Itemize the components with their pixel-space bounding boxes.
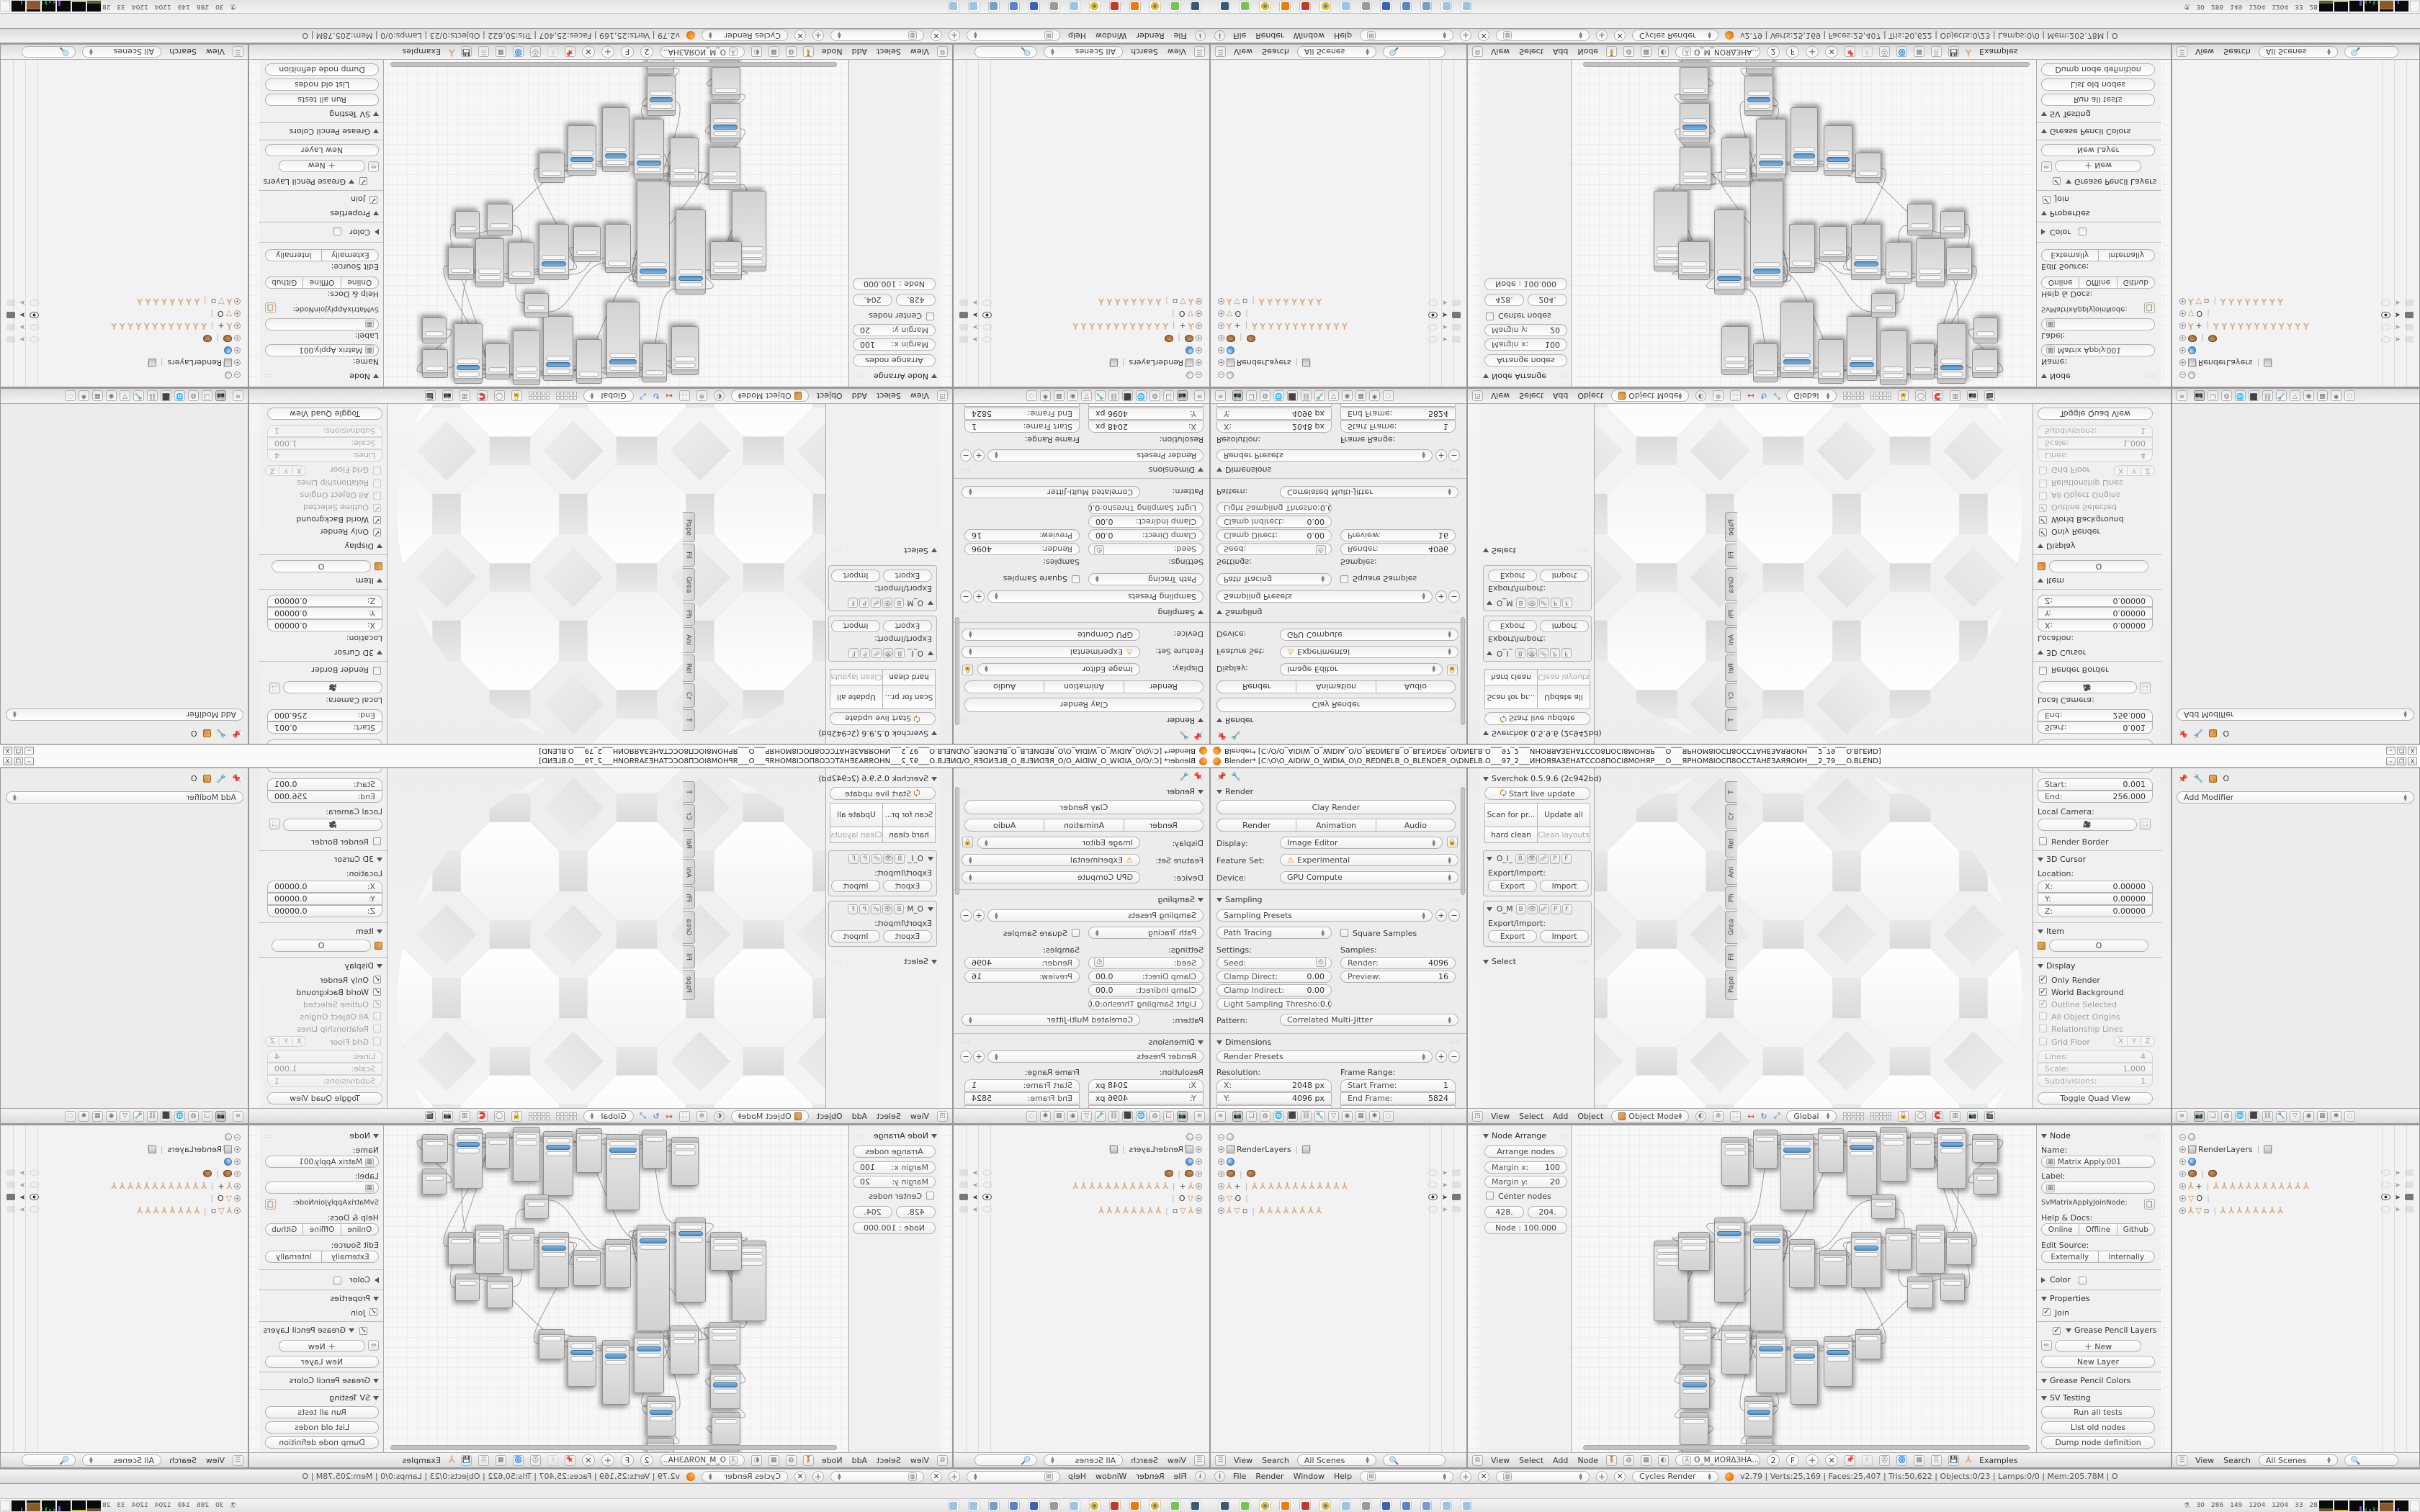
scan-for-props-button[interactable]: Scan for pr... <box>882 803 936 827</box>
visibility-toggles[interactable]: ➤ <box>2381 335 2414 343</box>
info-menu-help[interactable]: Help <box>1332 1472 1353 1481</box>
taskbar-chrome-2-icon[interactable] <box>1089 1 1101 12</box>
info-menu-file[interactable]: File <box>1232 1472 1247 1481</box>
layers-grid[interactable] <box>1870 392 1891 400</box>
render-toggle-camera-icon[interactable] <box>1452 300 1461 306</box>
sv-test-button-1[interactable]: List old nodes <box>265 78 379 91</box>
import-button[interactable]: Import <box>1540 620 1589 632</box>
add-tree-button[interactable]: ＋ <box>1806 1454 1819 1466</box>
axis-X-button[interactable]: X <box>292 1036 306 1047</box>
sverchok-node[interactable] <box>709 147 740 190</box>
visibility-toggles[interactable]: ➤ <box>2381 1182 2414 1189</box>
grid-field-1[interactable]: Scale:1.000 <box>2038 437 2153 449</box>
viewport-menu-object[interactable]: Object <box>815 1112 844 1121</box>
3d-cursor-panel-title[interactable]: 3D Cursor <box>334 648 382 657</box>
layers-grid[interactable] <box>1870 1112 1891 1120</box>
viewport-menu-select[interactable]: Select <box>875 1112 902 1121</box>
render-toggle-camera-icon[interactable] <box>2405 1206 2414 1212</box>
material-tab-icon[interactable]: ◉ <box>2303 1111 2314 1122</box>
render-render-button[interactable]: Render <box>1216 680 1296 693</box>
viewport-tab-Fil[interactable]: Fil <box>1725 945 1737 968</box>
color-checkbox[interactable] <box>2079 1277 2087 1284</box>
ghost-icon[interactable]: ☍ <box>1538 854 1549 864</box>
add-tree-button[interactable]: ＋ <box>1806 46 1819 58</box>
sverchok-node[interactable] <box>1886 242 1912 284</box>
frame-field-1[interactable]: End Frame:5824 <box>964 408 1080 420</box>
toggle-quad-view-button[interactable]: Toggle Quad View <box>2038 1092 2153 1104</box>
internally-button[interactable]: Internally <box>265 249 322 261</box>
constraints-tab-icon[interactable]: ⛓ <box>147 391 158 402</box>
render-toggle-camera-icon[interactable] <box>6 324 15 330</box>
sverchok-node[interactable] <box>508 1228 534 1270</box>
users-count-button[interactable]: 2 <box>1767 46 1780 58</box>
lock-icon[interactable]: 🔓 <box>511 1111 522 1122</box>
render-toggle-camera-icon[interactable] <box>959 312 968 318</box>
cursor-select-icon[interactable]: ➤ <box>1442 1194 1448 1202</box>
axis-X-button[interactable]: X <box>292 465 306 476</box>
layout-delete-button[interactable]: ✕ <box>931 1471 942 1482</box>
layout-add-button[interactable]: ＋ <box>949 30 960 42</box>
paste-nodes-icon[interactable]: 💾 <box>1948 1455 1959 1466</box>
taskbar-notepad-icon[interactable] <box>1069 1500 1080 1511</box>
particles-tab-icon[interactable]: ✱ <box>1040 1111 1051 1122</box>
sverchok-node[interactable] <box>1791 1340 1818 1405</box>
render-toggle-camera-icon[interactable] <box>2405 324 2414 330</box>
export-button[interactable]: Export <box>1488 880 1537 892</box>
add-modifier-dropdown[interactable]: Add Modifier▲▼ <box>2177 791 2414 804</box>
shader-icon[interactable]: 🧍 <box>1606 47 1617 58</box>
viewport-tab-T[interactable]: T <box>683 709 695 731</box>
taskbar-notepad-icon[interactable] <box>1340 1500 1351 1511</box>
axis-Z-button[interactable]: Z <box>265 1036 279 1047</box>
visibility-toggles[interactable]: ➤ <box>6 1194 39 1202</box>
taskbar-image-viewer-icon[interactable] <box>1400 1500 1412 1511</box>
pin-icon[interactable]: 📌 <box>2178 774 2188 783</box>
integrator-dropdown[interactable]: Path Tracing▲▼ <box>1216 573 1332 585</box>
node-scale-button[interactable]: Node : 100.000 <box>853 278 936 290</box>
modifiers-tab-icon[interactable]: 🔧 <box>2276 1111 2287 1122</box>
sverchok-node[interactable] <box>1940 211 1965 238</box>
resolution-field-0[interactable]: X:2048 px <box>1088 1079 1204 1092</box>
texture-tab-icon[interactable]: ▦ <box>2317 391 2328 402</box>
taskbar-speaker-icon[interactable] <box>1360 1500 1371 1511</box>
sverchok-node[interactable] <box>1744 76 1773 116</box>
outliner-row[interactable]: +RenderLayers| <box>2179 357 2378 369</box>
preset-remove-button[interactable]: − <box>960 449 972 462</box>
rotate-manipulator-icon[interactable]: ↻ <box>653 392 659 401</box>
render-render-button[interactable]: Render <box>1124 819 1204 832</box>
constraints-tab-icon[interactable]: ⛓ <box>1108 1111 1119 1122</box>
scale-manipulator-icon[interactable]: ⤢ <box>1774 1111 1780 1121</box>
preset-add-button[interactable]: + <box>1435 449 1447 462</box>
cursor-loc-2[interactable]: Z:0.00000 <box>267 595 382 607</box>
preset-remove-button[interactable]: − <box>1448 590 1460 603</box>
texture-tab-icon[interactable]: ▦ <box>92 391 103 402</box>
sverchok-node[interactable] <box>671 1137 699 1186</box>
material-tab-icon[interactable]: ◉ <box>1342 1111 1353 1122</box>
gp-new-button[interactable]: ＋ New <box>2055 1340 2141 1352</box>
render-layers-tab-icon[interactable]: ❏ <box>202 391 212 402</box>
scene-tab-icon[interactable]: ◍ <box>2221 1111 2232 1122</box>
sverchok-node[interactable] <box>1851 1232 1881 1288</box>
node-menu-select[interactable]: Select <box>875 48 902 57</box>
manipulator-icon[interactable]: ⛶ <box>1730 391 1741 402</box>
scene-selector[interactable]: ◍▲▼ <box>1496 1471 1590 1482</box>
texture-node-icon[interactable]: ◐ <box>1658 47 1669 58</box>
sverchok-node[interactable] <box>485 1133 510 1169</box>
info-menu-render[interactable]: Render <box>1254 1472 1285 1481</box>
start-live-update-button[interactable]: Start live update🗘 <box>1484 712 1590 725</box>
shader-icon[interactable]: 🧍 <box>803 47 814 58</box>
sverchok-node[interactable] <box>670 138 699 186</box>
copy-icon[interactable]: 📋 <box>2144 302 2155 313</box>
eye-icon[interactable]: 👁 <box>1527 854 1537 864</box>
viewport-menu-add[interactable]: Add <box>1551 1112 1569 1121</box>
expand-icon[interactable]: + <box>1196 1146 1202 1153</box>
update-all-button[interactable]: Update all <box>1538 685 1590 709</box>
viewport-tab-T[interactable]: T <box>1725 781 1737 803</box>
viewport-tab-Rel[interactable]: Rel <box>1725 654 1737 682</box>
texture-node-icon[interactable]: ◐ <box>751 1455 762 1466</box>
sverchok-node[interactable] <box>642 343 667 382</box>
copy-nodes-icon[interactable]: ⎘ <box>478 1455 489 1466</box>
outliner-row[interactable]: + <box>1218 1156 1425 1167</box>
node-panel-title[interactable]: Node <box>349 372 379 381</box>
render-layers-tab-icon[interactable]: ❏ <box>2208 1111 2218 1122</box>
pencil-icon[interactable]: ✏ <box>2041 1340 2052 1351</box>
margin-field-1[interactable]: Margin y:20 <box>853 1176 936 1188</box>
scene-tab-icon[interactable]: ◍ <box>1149 391 1160 402</box>
outliner-menu-view[interactable]: View <box>1166 1456 1188 1465</box>
taskbar-notepad-3-icon[interactable] <box>948 1 959 12</box>
render-toggle-camera-icon[interactable] <box>959 300 968 306</box>
outliner-row[interactable]: +⅄▽▫|⅄⅄⅄⅄⅄⅄⅄⅄ <box>42 296 241 307</box>
viewport-tab-Fil[interactable]: Fil <box>683 945 695 968</box>
new-layer-button[interactable]: New Layer <box>2041 144 2155 156</box>
sverchok-node[interactable] <box>712 67 740 100</box>
arrange-nodes-button[interactable]: Arrange nodes <box>853 354 936 366</box>
viewport-tab-Pape[interactable]: Pape <box>683 970 695 1000</box>
pin-icon[interactable]: 📌 <box>565 1455 575 1466</box>
render-camera-icon[interactable]: 📷 <box>1967 1111 1978 1122</box>
setting-field-2[interactable]: Clamp Indirect:0.00 <box>1216 516 1332 528</box>
sampling-panel-title[interactable]: Sampling <box>1216 895 1263 904</box>
eye-icon[interactable] <box>30 1169 39 1176</box>
expand-icon[interactable]: + <box>1196 311 1202 318</box>
material-tab-icon[interactable]: ◉ <box>2303 391 2314 402</box>
arrange-nodes-button[interactable]: Arrange nodes <box>1484 1146 1567 1158</box>
fake-user-button[interactable]: F <box>621 46 634 58</box>
sverchok-node[interactable] <box>1680 1322 1711 1365</box>
gp-colors-panel-title[interactable]: Grease Pencil Colors <box>290 1376 379 1385</box>
f-button[interactable]: F <box>848 854 859 864</box>
visibility-toggles[interactable]: ➤ <box>1428 1169 1461 1177</box>
close-button[interactable]: X <box>2408 747 2417 755</box>
mode-dropdown[interactable]: Object Mode▲▼ <box>731 390 809 402</box>
outliner-menu-view[interactable]: View <box>1166 48 1188 57</box>
world-tab-icon[interactable]: 🌐 <box>1136 1111 1147 1122</box>
outliner-search-field[interactable]: 🔍 <box>974 46 1037 58</box>
sverchok-node[interactable] <box>1818 1128 1844 1173</box>
ghost-icon[interactable]: ☍ <box>871 648 882 658</box>
eye-icon[interactable] <box>1428 324 1438 330</box>
offline-button[interactable]: Offline <box>2079 1223 2117 1236</box>
externally-button[interactable]: Externally <box>322 1251 380 1263</box>
outliner-row[interactable]: +⅄▽▫|⅄⅄⅄⅄⅄⅄⅄⅄ <box>2179 296 2378 307</box>
samples-field-0[interactable]: Render:4096 <box>1340 543 1456 555</box>
sverchok-node[interactable] <box>487 1277 513 1308</box>
display-dropdown[interactable]: Image Editor▲▼ <box>1280 837 1443 849</box>
externally-button[interactable]: Externally <box>2041 249 2099 261</box>
visibility-toggles[interactable]: ➤ <box>6 323 39 330</box>
internally-button[interactable]: Internally <box>2099 249 2156 261</box>
frame-field-1[interactable]: End Frame:5824 <box>964 1092 1080 1104</box>
sverchok-node[interactable] <box>1789 1239 1815 1288</box>
shader-icon[interactable]: 🧍 <box>1606 1455 1617 1466</box>
shader-icon[interactable]: 🧍 <box>803 1455 814 1466</box>
cursor-select-icon[interactable]: ➤ <box>19 1169 25 1177</box>
particles-tab-icon[interactable]: ✱ <box>79 391 89 402</box>
device-dropdown[interactable]: GPU Compute▲▼ <box>1280 629 1458 641</box>
bind-camera-icon[interactable]: ⛶ <box>269 819 280 829</box>
expand-icon[interactable]: + <box>1196 1207 1202 1214</box>
sverchok-node[interactable] <box>485 343 510 379</box>
node-name-field[interactable]: ▦Matrix Apply.001 <box>265 344 379 356</box>
viewport-shading-icon[interactable]: ◐ <box>714 1111 725 1122</box>
lock-icon[interactable]: 🔒 <box>962 665 973 675</box>
setting-field-0[interactable]: Seed:0 <box>1088 543 1204 555</box>
outliner-row[interactable]: +| <box>42 1168 241 1179</box>
expand-icon[interactable]: + <box>1196 336 1202 342</box>
setting-field-2[interactable]: Clamp Indirect:0.00 <box>1088 516 1204 528</box>
clay-render-button[interactable]: Clay Render <box>1216 698 1456 712</box>
info-menu-render[interactable]: Render <box>1254 31 1285 40</box>
users-count-button[interactable]: 2 <box>640 46 653 58</box>
sverchok-node[interactable] <box>1946 247 1972 280</box>
data-tab-icon[interactable]: ▽ <box>1328 1111 1339 1122</box>
sverchok-node[interactable] <box>524 1194 549 1219</box>
sv-test-button-0[interactable]: Run all tests <box>2041 1406 2155 1418</box>
outliner-row[interactable]: +⅄▽▫|⅄⅄⅄⅄⅄⅄⅄⅄ <box>1218 296 1425 307</box>
outliner-row[interactable]: +⅄▽▫|⅄⅄⅄⅄⅄⅄⅄⅄ <box>1218 1205 1425 1216</box>
node-label-field[interactable]: ▦ <box>2041 1182 2155 1194</box>
node-hscrollbar[interactable] <box>390 62 837 67</box>
taskbar-chrome-2-icon[interactable] <box>1319 1500 1331 1511</box>
data-tab-icon[interactable]: ▽ <box>1081 391 1092 402</box>
clay-render-button[interactable]: Clay Render <box>964 800 1204 814</box>
node-name-field[interactable]: ▦Matrix Apply.001 <box>265 1156 379 1168</box>
sverchok-node[interactable] <box>448 247 474 280</box>
y-value-button[interactable]: 204. <box>1528 294 1567 306</box>
sv-test-button-0[interactable]: Run all tests <box>265 1406 379 1418</box>
texture-tab-icon[interactable]: ▦ <box>1355 1111 1366 1122</box>
copy-icon[interactable]: 📋 <box>265 1199 276 1210</box>
snap-magnet-icon[interactable]: 🧲 <box>477 391 488 402</box>
render-engine-selector[interactable]: Cycles Render▲▼ <box>1632 30 1718 42</box>
sverchok-node[interactable] <box>1972 1134 1998 1163</box>
layout-add-button[interactable]: ＋ <box>949 1471 960 1482</box>
expand-icon[interactable]: + <box>234 1207 241 1214</box>
node-menu-view[interactable]: View <box>1489 1456 1511 1465</box>
texture-node-icon[interactable]: ◐ <box>751 47 762 58</box>
taskbar-chrome-2-icon[interactable] <box>1089 1500 1101 1511</box>
snap-magnet-icon[interactable]: 🧲 <box>1932 391 1943 402</box>
scene-tab-icon[interactable]: ◍ <box>1260 1111 1270 1122</box>
resolution-field-0[interactable]: X:2048 px <box>1216 420 1332 433</box>
editor-type-node-icon[interactable]: ⧉ <box>1472 1455 1483 1466</box>
viewport-tab-Pape[interactable]: Pape <box>1725 970 1737 1000</box>
taskbar-monitor-icon[interactable] <box>1219 1500 1230 1511</box>
taskbar-android-icon[interactable] <box>1239 1500 1250 1511</box>
outliner-search-field[interactable]: 🔍 <box>1383 46 1446 58</box>
users-count-button[interactable]: 2 <box>640 1454 653 1466</box>
outliner-row[interactable]: +RenderLayers| <box>42 357 241 369</box>
pivot-point-icon[interactable]: ⊕ <box>696 1111 707 1122</box>
taskbar-calculator-icon[interactable] <box>1420 1500 1432 1511</box>
world-node-icon[interactable]: ◍ <box>1623 47 1634 58</box>
sv-testing-panel-title[interactable]: SV Testing <box>329 109 379 119</box>
node-panel-title[interactable]: Node <box>2041 372 2071 381</box>
world-tab-icon[interactable]: 🌐 <box>2235 391 2246 402</box>
sverchok-node[interactable] <box>1750 181 1783 287</box>
modifiers-tab-icon[interactable]: 🔧 <box>1095 391 1106 402</box>
new-layer-button[interactable]: New Layer <box>2041 1356 2155 1368</box>
sverchok-node[interactable] <box>1756 119 1786 179</box>
collapse-icon[interactable]: − <box>1218 1134 1224 1140</box>
constraints-tab-icon[interactable]: ⛓ <box>2262 391 2273 402</box>
node-hscrollbar[interactable] <box>390 1445 837 1450</box>
f-button[interactable]: F <box>1561 854 1572 864</box>
taskbar-deluge-icon[interactable] <box>1109 1 1121 12</box>
eye-icon[interactable] <box>2381 312 2390 318</box>
node-menu-view[interactable]: View <box>1489 48 1511 57</box>
taskbar-monitor-icon[interactable] <box>1219 1 1230 12</box>
node-arrange-panel-title[interactable]: Node Arrange <box>874 372 937 381</box>
sverchok-node[interactable] <box>1678 241 1710 280</box>
sverchok-node[interactable] <box>448 1232 474 1265</box>
github-button[interactable]: Github <box>265 276 302 289</box>
viewport-tab-Fil[interactable]: Fil <box>1725 544 1737 567</box>
integrator-dropdown[interactable]: Path Tracing▲▼ <box>1088 927 1204 939</box>
properties-editor-type-icon[interactable]: ≡ <box>1194 391 1205 402</box>
expand-icon[interactable]: + <box>1196 1158 1202 1165</box>
mode-dropdown[interactable]: Object Mode▲▼ <box>731 1110 809 1122</box>
color-checkbox[interactable] <box>333 1277 341 1284</box>
outliner-row[interactable]: +⅄+|⅄⅄⅄⅄⅄⅄⅄⅄⅄⅄⅄⅄ <box>1218 320 1425 332</box>
offline-button[interactable]: Offline <box>302 1223 340 1236</box>
sverchok-node[interactable] <box>422 349 448 378</box>
eye-icon[interactable] <box>1428 312 1438 318</box>
info-menu-file[interactable]: File <box>1173 1472 1188 1481</box>
outliner-search-field[interactable]: 🔍 <box>2344 46 2398 58</box>
scene-add-button[interactable]: ＋ <box>1596 1471 1608 1482</box>
internally-button[interactable]: Internally <box>2099 1251 2156 1263</box>
axis-Z-button[interactable]: Z <box>2141 465 2155 476</box>
viewport-tab-Ani[interactable]: Ani <box>683 627 695 653</box>
viewport-menu-view[interactable]: View <box>1489 392 1511 401</box>
sverchok-node[interactable] <box>1680 1412 1708 1445</box>
minimize-button[interactable]: – <box>24 757 34 765</box>
display-dropdown[interactable]: Image Editor▲▼ <box>977 663 1140 675</box>
lock-icon[interactable]: 🔒 <box>1447 665 1458 675</box>
viewport-menu-view[interactable]: View <box>1489 1112 1511 1121</box>
material-tab-icon[interactable]: ◉ <box>106 391 117 402</box>
pattern-dropdown[interactable]: Correlated Multi-Jitter▲▼ <box>1280 486 1458 498</box>
unlink-tree-button[interactable]: ✕ <box>582 46 595 58</box>
cursor-loc-2[interactable]: Z:0.00000 <box>2038 595 2153 607</box>
outliner-row[interactable]: + <box>42 345 241 356</box>
sverchok-node[interactable] <box>513 1127 540 1182</box>
visibility-toggles[interactable]: ➤ <box>959 1182 992 1189</box>
taskbar-notepad-2-icon[interactable] <box>1440 1500 1452 1511</box>
viewport-tab-Cr[interactable]: Cr <box>683 804 695 829</box>
expand-icon[interactable]: + <box>2179 323 2186 330</box>
dimensions-panel-title[interactable]: Dimensions <box>1216 465 1271 474</box>
feature-set-dropdown[interactable]: Experimental▲▼⚠ <box>962 646 1140 658</box>
screen-layout-selector[interactable]: ⊞▲▼ <box>1360 1471 1453 1482</box>
node-menu-node[interactable]: Node <box>1576 48 1600 57</box>
cursor-select-icon[interactable]: ➤ <box>2395 323 2401 330</box>
node-scale-button[interactable]: Node : 100.000 <box>1484 278 1567 290</box>
layout-delete-button[interactable]: ✕ <box>931 30 942 42</box>
lock-icon[interactable]: 🔒 <box>962 837 973 847</box>
examples-menu[interactable]: Examples <box>401 1456 442 1465</box>
render-toggle-camera-icon[interactable] <box>6 1206 15 1212</box>
sverchok-node[interactable] <box>1721 138 1750 186</box>
preset-remove-button[interactable]: − <box>1448 909 1460 922</box>
eye-icon[interactable]: 👁 <box>1528 904 1538 914</box>
cursor-loc-0[interactable]: X:0.00000 <box>267 619 382 631</box>
editor-type-node-icon[interactable]: ⧉ <box>937 1455 948 1466</box>
render-toggle-camera-icon[interactable] <box>2405 336 2414 343</box>
render-audio-button[interactable]: Audio <box>964 819 1044 832</box>
snap-icon[interactable]: ⛑ <box>530 47 541 58</box>
sverchok-node[interactable] <box>1937 323 1966 384</box>
sverchok-node[interactable] <box>1855 1329 1881 1359</box>
outliner-row[interactable]: + <box>995 345 1202 356</box>
outliner-editor-type-icon[interactable]: ☰ <box>233 1455 243 1466</box>
properties-scrollbar[interactable] <box>1461 787 1465 895</box>
sverchok-node[interactable] <box>1721 1326 1750 1374</box>
data-tab-icon[interactable]: ▽ <box>120 1111 130 1122</box>
expand-icon[interactable]: + <box>2179 1171 2186 1177</box>
eye-icon[interactable] <box>982 336 992 343</box>
preset-remove-button[interactable]: − <box>960 590 972 603</box>
eye-icon[interactable] <box>2381 336 2390 343</box>
taskbar-speaker-icon[interactable] <box>1360 1 1371 12</box>
scenes-filter-dropdown[interactable]: All Scenes▲▼ <box>2259 1454 2338 1466</box>
viewport-tab-Cr[interactable]: Cr <box>1725 804 1737 829</box>
add-modifier-dropdown[interactable]: Add Modifier▲▼ <box>6 708 243 721</box>
sverchok-node[interactable] <box>642 1130 667 1169</box>
sampling-panel-title[interactable]: Sampling <box>1158 895 1204 904</box>
render-toggle-camera-icon[interactable] <box>1452 1206 1461 1212</box>
info-editor-type-icon[interactable]: ℹ <box>1214 1471 1225 1482</box>
scan-for-props-button[interactable]: Scan for pr... <box>882 685 936 709</box>
fake-user-button[interactable]: F <box>621 1454 634 1466</box>
expand-icon[interactable]: + <box>234 336 241 342</box>
offline-button[interactable]: Offline <box>302 276 340 289</box>
render-panel-title[interactable]: Render <box>1167 787 1204 796</box>
taskbar-notepad-2-icon[interactable] <box>1440 1 1452 12</box>
render-tab-icon[interactable]: 📷 <box>2194 391 2205 402</box>
pin-icon[interactable]: 📌 <box>1193 772 1204 781</box>
pin-icon[interactable]: 📌 <box>1845 1455 1855 1466</box>
taskbar-image-viewer-icon[interactable] <box>1400 1 1412 12</box>
margin-field-0[interactable]: Margin x:100 <box>1484 1161 1567 1174</box>
cursor-select-icon[interactable]: ➤ <box>972 1194 978 1202</box>
pencil-icon[interactable]: ✏ <box>368 1340 379 1351</box>
